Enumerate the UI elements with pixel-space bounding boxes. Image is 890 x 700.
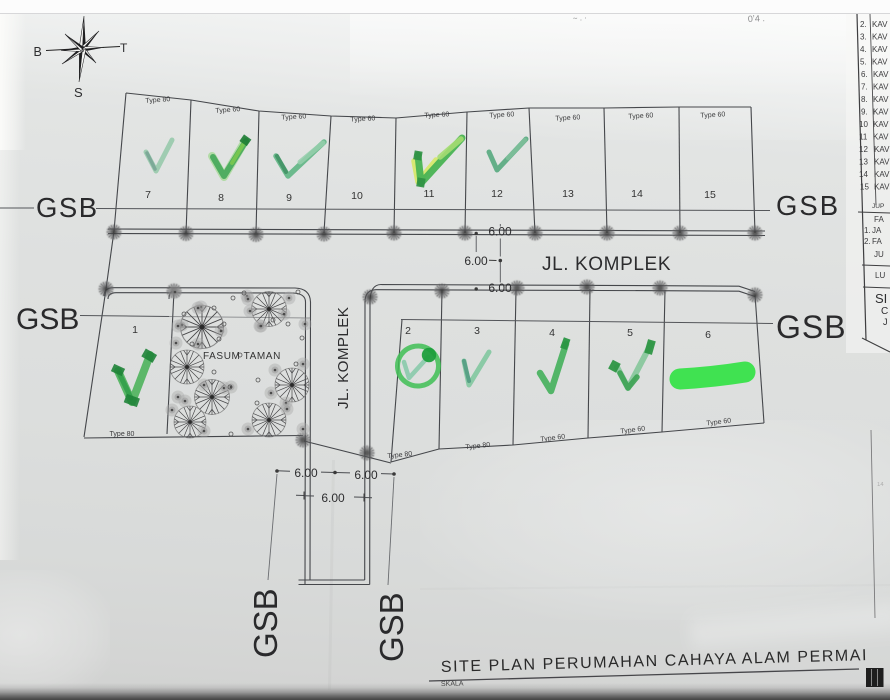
- svg-text:Type 60: Type 60: [489, 111, 514, 119]
- svg-text:KAV: KAV: [874, 158, 890, 167]
- svg-text:Type 80: Type 80: [110, 431, 135, 438]
- svg-text:KAV: KAV: [873, 108, 889, 117]
- svg-text:GSB: GSB: [373, 592, 410, 662]
- svg-text:6.00: 6.00: [464, 254, 488, 268]
- svg-text:6.00: 6.00: [321, 491, 345, 505]
- svg-text:GSB: GSB: [36, 192, 99, 223]
- svg-text:0ʼ4 .: 0ʼ4 .: [748, 13, 766, 24]
- svg-text:LU: LU: [875, 271, 885, 280]
- svg-text:KAV: KAV: [873, 70, 889, 79]
- svg-text:7.: 7.: [861, 83, 868, 92]
- svg-text:1.: 1.: [864, 226, 871, 235]
- svg-text:JA: JA: [872, 226, 882, 235]
- svg-text:6: 6: [705, 329, 711, 341]
- svg-text:10: 10: [351, 190, 363, 202]
- svg-text:3: 3: [474, 325, 480, 337]
- svg-text:KAV: KAV: [873, 95, 889, 104]
- svg-text:JL. KOMPLEK: JL. KOMPLEK: [335, 307, 352, 409]
- svg-text:S: S: [74, 85, 83, 100]
- svg-text:B: B: [34, 45, 42, 59]
- svg-text:9.: 9.: [861, 108, 868, 117]
- svg-text:1: 1: [132, 324, 138, 336]
- svg-text:15: 15: [860, 183, 869, 192]
- svg-text:14: 14: [859, 170, 868, 179]
- svg-text:10: 10: [859, 120, 868, 129]
- svg-text:3.: 3.: [860, 33, 867, 42]
- svg-text:6.: 6.: [861, 70, 868, 79]
- svg-text:KAV: KAV: [873, 133, 889, 142]
- svg-text:SI: SI: [875, 291, 887, 306]
- svg-text:12: 12: [491, 188, 503, 200]
- svg-text:2.: 2.: [860, 20, 867, 29]
- svg-text:SKALA: SKALA: [441, 681, 464, 688]
- svg-text:T: T: [120, 41, 128, 55]
- svg-text:KAV: KAV: [874, 170, 890, 179]
- svg-text:~ . ·: ~ . ·: [573, 13, 588, 23]
- svg-text:6.00: 6.00: [488, 225, 512, 239]
- svg-text:KAV: KAV: [872, 20, 888, 29]
- svg-text:Type 80: Type 80: [387, 451, 413, 461]
- svg-text:12: 12: [859, 145, 868, 154]
- svg-text:KAV: KAV: [872, 45, 888, 54]
- svg-text:FA: FA: [874, 215, 884, 224]
- svg-text:Type 60: Type 60: [281, 113, 306, 121]
- svg-text:Type 60: Type 60: [628, 112, 653, 120]
- svg-text:7: 7: [145, 189, 151, 201]
- svg-text:6.00: 6.00: [294, 466, 318, 480]
- svg-text:6.00: 6.00: [354, 468, 378, 482]
- svg-text:Type 60: Type 60: [350, 115, 375, 123]
- svg-text:11: 11: [859, 133, 868, 142]
- svg-text:11: 11: [424, 188, 435, 200]
- svg-text:5: 5: [627, 327, 633, 339]
- svg-text:Type 60: Type 60: [540, 434, 566, 444]
- svg-text:KAV: KAV: [872, 58, 888, 67]
- svg-text:KAV: KAV: [872, 33, 888, 42]
- svg-text:4: 4: [549, 327, 555, 339]
- svg-text:13: 13: [562, 188, 574, 200]
- svg-text:JL. KOMPLEK: JL. KOMPLEK: [542, 254, 671, 275]
- svg-text:8.: 8.: [861, 95, 868, 104]
- svg-text:KAV: KAV: [873, 120, 889, 129]
- svg-text:JU: JU: [874, 250, 884, 259]
- svg-text:Type 60: Type 60: [424, 111, 449, 119]
- svg-text:SITE PLAN PERUMAHAN CAHAYA ALA: SITE PLAN PERUMAHAN CAHAYA ALAM PERMAI: [441, 647, 869, 676]
- svg-text:C: C: [881, 306, 888, 317]
- svg-text:14: 14: [631, 188, 643, 200]
- svg-text:GSB: GSB: [776, 190, 840, 221]
- svg-text:Type 80: Type 80: [465, 442, 491, 452]
- svg-text:KAV: KAV: [873, 83, 889, 92]
- svg-text:Type 80: Type 80: [145, 96, 170, 105]
- svg-text:FA: FA: [872, 237, 882, 246]
- svg-text:Type 60: Type 60: [700, 111, 725, 119]
- svg-text:GSB: GSB: [247, 588, 284, 658]
- svg-text:15: 15: [704, 189, 716, 201]
- svg-text:Type 60: Type 60: [555, 114, 580, 122]
- svg-text:GSB: GSB: [16, 303, 79, 336]
- svg-text:KAV: KAV: [874, 145, 890, 154]
- svg-text:2.: 2.: [864, 237, 871, 246]
- svg-text:6.00: 6.00: [488, 281, 512, 295]
- svg-text:13: 13: [859, 158, 868, 167]
- svg-text:4.: 4.: [860, 45, 867, 54]
- svg-text:8: 8: [218, 192, 224, 204]
- svg-text:5.: 5.: [860, 58, 867, 67]
- svg-text:GSB: GSB: [776, 309, 847, 345]
- svg-text:2: 2: [405, 325, 411, 337]
- svg-text:JUP: JUP: [872, 203, 884, 210]
- svg-text:FASUM TAMAN: FASUM TAMAN: [203, 351, 281, 362]
- svg-text:Type 60: Type 60: [215, 106, 240, 115]
- svg-text:KAV: KAV: [874, 183, 890, 192]
- svg-text:14: 14: [877, 482, 884, 488]
- svg-text:9: 9: [286, 192, 292, 204]
- svg-text:J: J: [883, 317, 888, 327]
